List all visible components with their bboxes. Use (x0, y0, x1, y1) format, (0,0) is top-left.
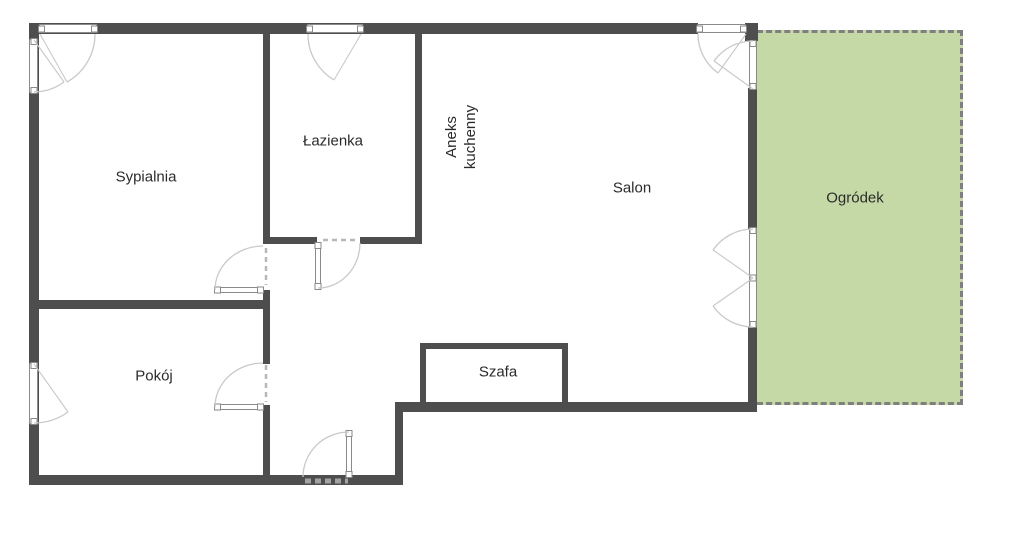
wall-lazienka-bottom-right (360, 237, 422, 244)
room-label-szafa: Szafa (479, 364, 517, 381)
door-leaf-pokoj (215, 404, 263, 410)
window-mullion-cap (750, 274, 757, 281)
room-label-sypialnia: Sypialnia (116, 169, 177, 186)
room-label-aneks-line2: kuchenny (461, 105, 480, 169)
door-swing-lazienka (318, 240, 360, 288)
window-sypialnia-left (29, 39, 38, 93)
window-swing-pokoj-left (34, 364, 68, 423)
window-salon-top-corner (697, 24, 746, 33)
garden-area (757, 30, 963, 405)
door-swing-pokoj (215, 363, 266, 407)
door-leaf-sypialnia (215, 287, 263, 293)
wall-right-upper (748, 88, 757, 229)
wall-lazienka-bottom-left (263, 237, 317, 244)
room-label-aneks-kuchenny: Aneks kuchenny (442, 105, 480, 169)
wall-szafa-left (420, 343, 426, 402)
window-salon-right-double (749, 228, 757, 327)
room-label-salon: Salon (613, 180, 651, 197)
wall-sypialnia-hall-mid (263, 290, 270, 364)
window-swing-sypialnia-top (40, 34, 95, 82)
window-salon-right-corner (749, 41, 757, 89)
room-label-lazienka: Łazienka (303, 133, 363, 150)
window-pokoj-left (29, 363, 38, 424)
wall-step-vertical (395, 403, 403, 485)
window-swing-lazienka-top (308, 34, 361, 80)
door-leaf-entrance (346, 431, 352, 477)
wall-pokoj-hall-low (263, 405, 270, 475)
door-leaf-lazienka (315, 243, 321, 289)
window-lazienka-top (307, 24, 363, 33)
wall-szafa-top (420, 343, 568, 349)
window-swing-salon-right-double (713, 229, 753, 327)
room-label-ogrodek: Ogródek (826, 190, 884, 207)
wall-sypialnia-pokoj (38, 300, 263, 309)
door-swing-sypialnia (215, 246, 266, 290)
door-swing-entrance (303, 432, 349, 481)
room-label-aneks-line1: Aneks (442, 105, 461, 169)
wall-szafa-right (562, 343, 568, 402)
window-swing-salon-top-corner (698, 34, 746, 73)
wall-lazienka-kitchen (415, 33, 422, 243)
wall-bottom-salon (395, 402, 757, 412)
window-swing-salon-right-corner (714, 41, 753, 89)
room-label-pokoj: Pokój (135, 368, 173, 385)
wall-sypialnia-lazienka (263, 33, 270, 243)
wall-right-lower (748, 326, 757, 412)
window-sypialnia-top (39, 24, 97, 33)
floorplan-canvas: Sypialnia Łazienka Aneks kuchenny Salon … (0, 0, 1024, 538)
